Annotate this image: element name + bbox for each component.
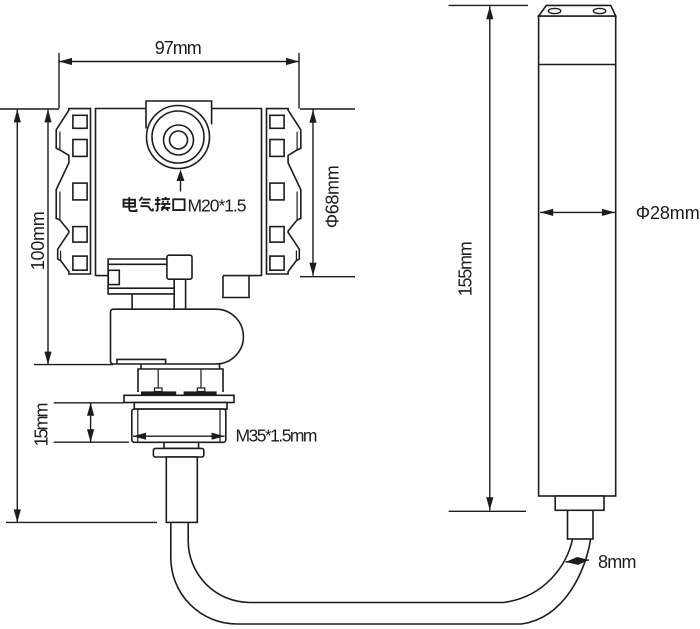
svg-text:M35*1.5mm: M35*1.5mm: [236, 425, 318, 445]
svg-text:97mm: 97mm: [155, 38, 202, 58]
svg-text:155mm: 155mm: [456, 241, 476, 296]
svg-text:15mm: 15mm: [32, 403, 52, 447]
svg-text:8mm: 8mm: [598, 552, 637, 572]
svg-text:Φ28mm: Φ28mm: [636, 203, 700, 223]
svg-text:M20*1.5: M20*1.5: [188, 196, 247, 216]
svg-text:100mm: 100mm: [28, 211, 48, 270]
svg-text:Φ68mm: Φ68mm: [323, 165, 343, 228]
